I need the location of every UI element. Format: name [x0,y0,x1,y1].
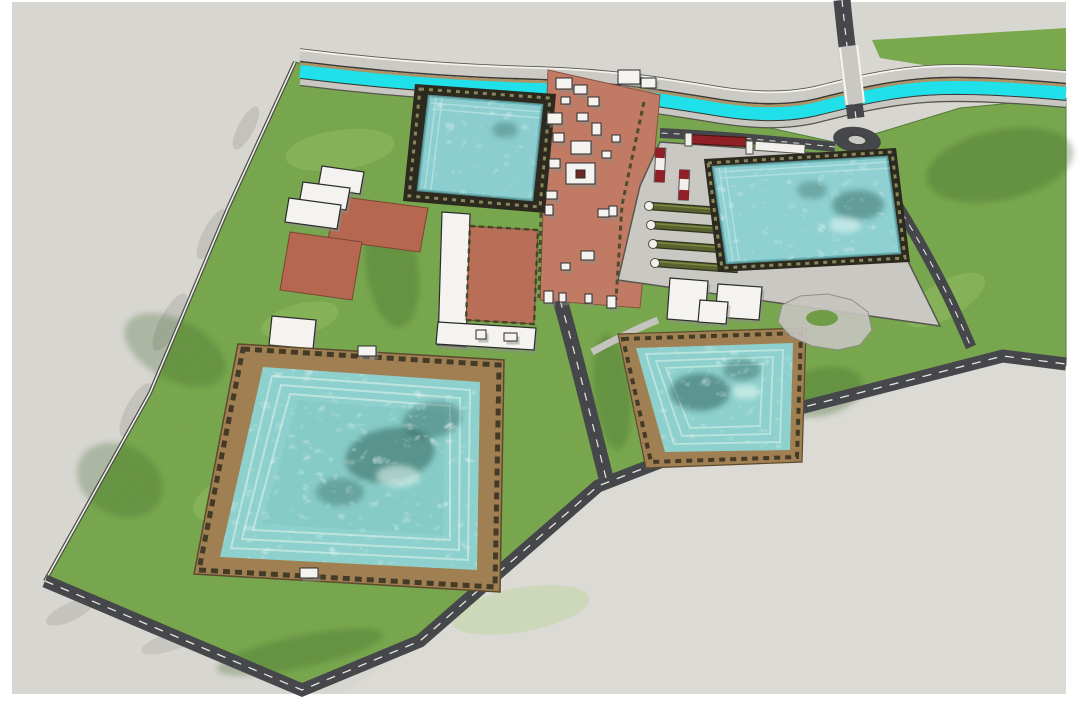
plaza-gate-post [559,293,566,302]
main-pool-gate [300,568,318,578]
red-court-south [280,232,362,300]
changing-room-c [698,300,728,324]
plaza-mid-gate [545,205,553,215]
gate-pylon-stripe [655,170,666,183]
plaza-gate-post [585,294,592,303]
plaza-kiosk [556,78,572,89]
storage-hut [269,316,316,349]
gate-pylon-stripe [655,148,666,159]
architectural-site-plan-rendering [0,0,1080,714]
channel-cap [645,202,654,211]
north-pool-caustics [418,96,542,200]
river-bridge-deck [848,46,855,104]
plaza-kiosk [598,209,609,217]
plaza-kiosk [546,191,557,199]
plaza-kiosk [581,251,594,260]
scene-root [12,0,1080,694]
barrier-cap [685,133,692,146]
plaza-kiosk [561,263,570,270]
channel-cap [649,240,658,249]
plaza-gate-post [607,296,616,308]
courtyard-gate-kiosk [504,333,517,341]
plaza-kiosk [561,97,570,104]
channel-cap [651,259,660,268]
plaza-kiosk [547,113,562,124]
plaza-kiosk [612,135,620,142]
plaza-kiosk [588,97,599,106]
riverside-pergola [618,70,640,84]
main-pool-caustics [220,367,480,570]
plaza-pavilion [571,141,591,154]
barrier-cap [746,141,753,154]
plaza-mid-gate [609,206,617,216]
east-pool-caustics [713,157,900,263]
channel-cap [647,221,656,230]
plaza-gate-post [544,291,553,303]
scene-canvas [0,0,1080,714]
plaza-kiosk [549,159,560,168]
courtyard-gate-kiosk [476,330,486,339]
main-pool-gate [358,346,376,356]
plaza-kiosk [592,123,601,135]
riverside-pergola [641,78,656,88]
gate-pylon-stripe [679,170,689,180]
plaza-kiosk [602,151,611,158]
plaza-kiosk [553,133,564,142]
gate-pylon-stripe [679,190,690,201]
plaza-fountain [576,170,585,178]
plaza-kiosk [577,113,588,121]
courtyard-red [466,226,538,324]
rock-garden-island [806,310,838,326]
plaza-kiosk [574,85,587,94]
